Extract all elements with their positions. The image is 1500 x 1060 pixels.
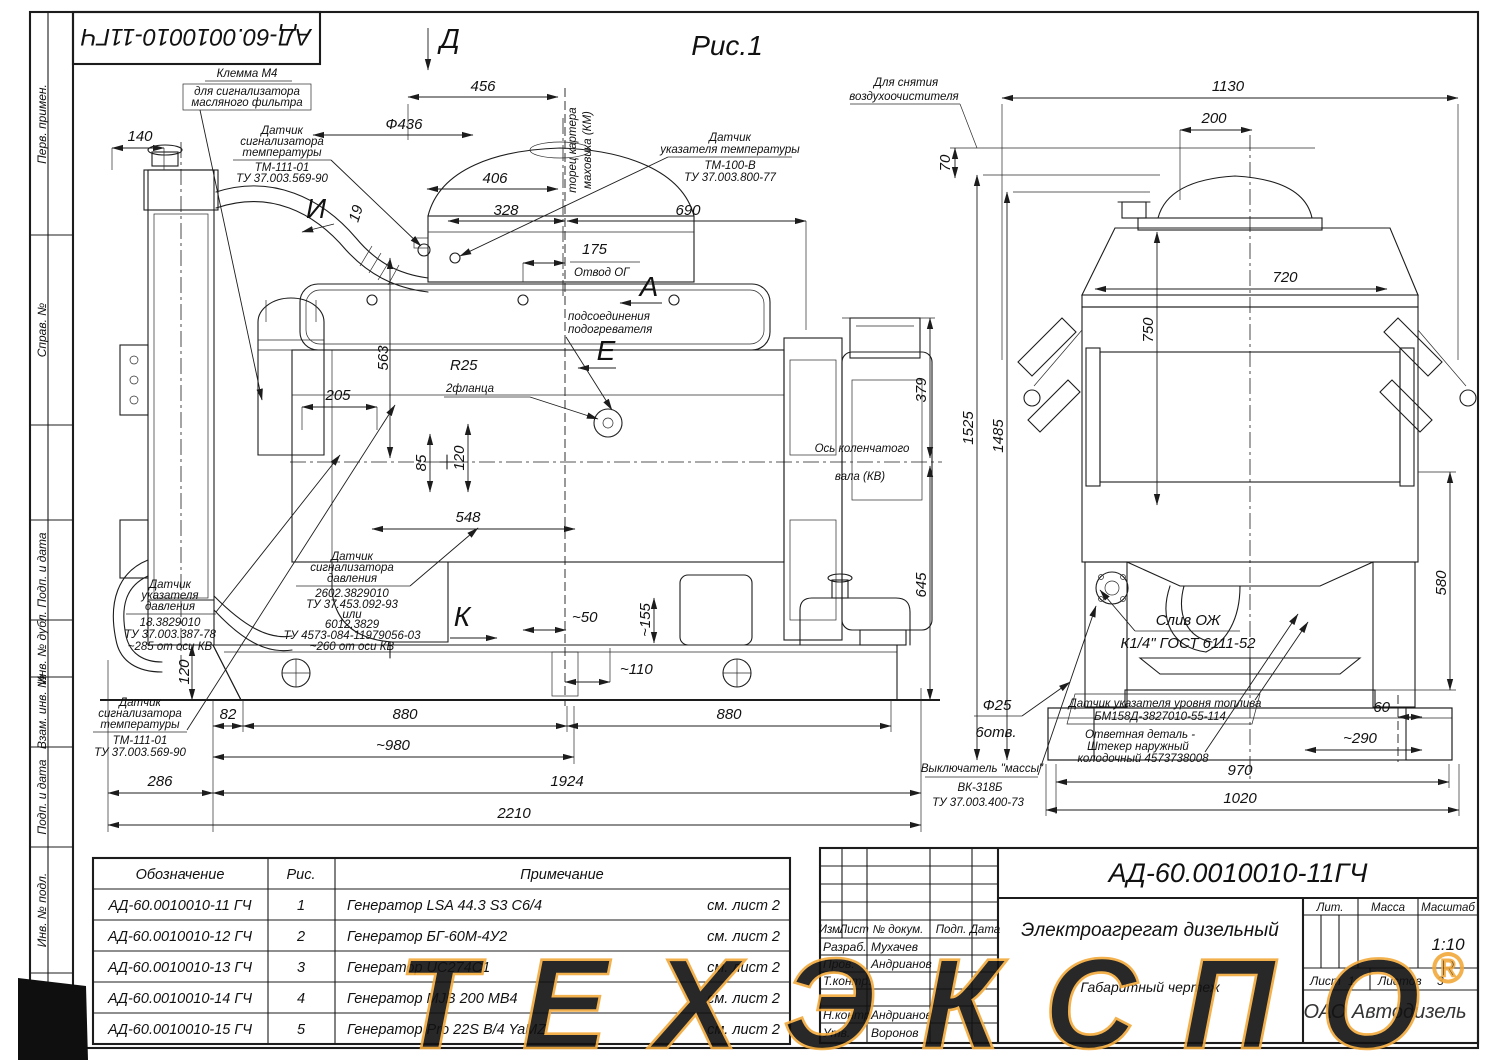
mass-header: Масса <box>1371 902 1405 914</box>
dim-286: 286 <box>146 773 173 790</box>
cell-figure: 2 <box>296 929 305 945</box>
cell-designation: АД-60.0010010-14 ГЧ <box>107 991 252 1007</box>
sidebar-label: Перв. примен. <box>35 84 49 164</box>
scan-artifact <box>18 978 88 1060</box>
dim-50: ~50 <box>572 609 598 626</box>
label-flywheel-face: торец картера <box>567 107 579 192</box>
table-header: Рис. <box>286 867 315 883</box>
callout-temp-signal-sensor-top: Датчик сигнализатора температуры ТМ-111-… <box>233 125 421 246</box>
label-crankshaft-axis: Ось коленчатого <box>815 443 910 455</box>
label-exhaust-outlet: Отвод ОГ <box>574 267 630 279</box>
callout-text: ТУ 37.003.387-78 <box>124 629 216 641</box>
oil-filter <box>258 298 324 455</box>
callout-text: Ответная деталь - <box>1085 729 1195 741</box>
callout-text: Ф25 <box>983 697 1012 714</box>
label-2-flanges: 2фланца <box>445 383 494 395</box>
cell-see-sheet: см. лист 2 <box>707 898 780 914</box>
sidebar-label: Взам. инв. № <box>35 675 49 749</box>
lit-header: Лит. <box>1316 902 1344 914</box>
front-view-dimensions: 1130 200 70 Для снятия воздухоочистителя… <box>849 77 1459 816</box>
dim-175: 175 <box>582 241 608 258</box>
label-heater-connection: подсоединения <box>568 311 650 323</box>
front-view <box>1018 135 1476 782</box>
sidebar-label: Подп. и дата <box>35 532 49 607</box>
view-arrow-k: К <box>454 601 472 632</box>
cell-figure: 4 <box>297 991 305 1007</box>
dim-120-base: 120 <box>176 659 193 685</box>
callout-text: БМ158Д-3827010-55-114 <box>1094 711 1226 723</box>
dim-970: 970 <box>1227 762 1253 779</box>
cell-designation: АД-60.0010010-15 ГЧ <box>107 1022 252 1038</box>
dim-200: 200 <box>1200 110 1227 127</box>
cell-note: Генератор LSA 44.3 S3 C6/4 <box>347 898 542 914</box>
callout-text: давления <box>145 601 195 613</box>
drawing-canvas: Перв. примен. Справ. № Подп. и дата Инв.… <box>0 0 1500 1060</box>
label-flywheel-face: маховика (КМ) <box>582 111 594 189</box>
callout-text: Для снятия <box>872 77 938 89</box>
dim-r25: R25 <box>450 357 478 374</box>
air-cleaner-front <box>1158 176 1312 218</box>
callout-text: указателя температуры <box>659 144 800 156</box>
dim-70: 70 <box>937 154 954 171</box>
figure-label: Рис.1 <box>691 30 763 61</box>
dim-645: 645 <box>913 572 930 598</box>
fuel-tank <box>800 574 910 645</box>
callout-text: К1/4" ГОСТ 6111-52 <box>1121 635 1257 652</box>
doc-number: АД-60.0010010-11ГЧ <box>1107 858 1369 888</box>
dim-60: 60 <box>1373 699 1390 716</box>
sidebar-label: Подп. и дата <box>35 759 49 834</box>
callout-text: температуры <box>100 719 180 731</box>
watermark: ОАО Автодизель ТЕХЭКСПО ® <box>398 933 1467 1060</box>
callout-text: масляного фильтра <box>191 97 302 109</box>
table-row: АД-60.0010010-11 ГЧ 1 Генератор LSA 44.3… <box>107 898 780 914</box>
drawing-sheet: Перв. примен. Справ. № Подп. и дата Инв.… <box>0 0 1500 1060</box>
callout-pressure-signal-sensor: Датчик сигнализатора давления 2602.38290… <box>284 528 478 653</box>
dim-880a: 880 <box>392 706 418 723</box>
callout-text: давления <box>327 573 377 585</box>
callout-text: ТУ 37.003.569-90 <box>94 747 186 759</box>
callout-text: Выключатель "массы" <box>921 763 1044 775</box>
callout-text: Датчик <box>707 132 751 144</box>
dim-328: 328 <box>493 202 519 219</box>
dim-1020: 1020 <box>1223 790 1257 807</box>
callout-text: ~260 от оси КВ <box>310 641 395 653</box>
callout-text: ТУ 37.003.800-77 <box>684 172 776 184</box>
sidebar-label: Справ. № <box>35 303 49 358</box>
dim-548: 548 <box>455 509 481 526</box>
watermark-text: ТЕХЭКСПО <box>398 933 1466 1060</box>
scale-header: Масштаб <box>1421 902 1475 914</box>
view-arrow-d: Д <box>437 23 460 54</box>
callout-text: колодочный 4573738008 <box>1078 753 1210 765</box>
callout-text: ~285 от оси КВ <box>128 641 213 653</box>
dim-379: 379 <box>913 377 930 403</box>
dim-720: 720 <box>1272 269 1298 286</box>
dim-155: ~155 <box>637 602 654 636</box>
mass-switch-device <box>1096 572 1128 604</box>
label-heater-connection: подогревателя <box>568 324 652 336</box>
dim-580: 580 <box>1433 570 1450 596</box>
callout-text: температуры <box>242 147 322 159</box>
watermark-registered-icon: ® <box>1432 944 1463 991</box>
dim-406: 406 <box>482 170 508 187</box>
cell-designation: АД-60.0010010-12 ГЧ <box>107 929 252 945</box>
sidebar-label: Инв. № подл. <box>35 873 49 947</box>
top-stamp: АД-60.0010010-11ГЧ <box>73 12 320 64</box>
base-skid <box>100 645 940 700</box>
dim-140: 140 <box>127 128 153 145</box>
table-header: Примечание <box>520 867 604 883</box>
dim-85: 85 <box>413 454 430 471</box>
expansion-box <box>680 575 752 645</box>
callout-text: 18.3829010 <box>140 617 201 629</box>
side-bracket-left <box>1018 318 1082 432</box>
sidebar-label: Инв. № дубл. <box>35 611 49 685</box>
callout-text: Датчик указателя уровня топлива <box>1067 698 1262 710</box>
callout-text: ТМ-100-В <box>704 160 756 172</box>
callout-text: ТМ-111-01 <box>113 735 168 747</box>
cell-designation: АД-60.0010010-13 ГЧ <box>107 960 252 976</box>
dim-120-offset: 120 <box>451 445 468 471</box>
callout-text: Слив ОЖ <box>1156 612 1222 629</box>
dim-563: 563 <box>375 345 392 371</box>
cell-figure: 1 <box>297 898 305 914</box>
label-crankshaft-axis: вала (КВ) <box>835 471 885 483</box>
dim-1924: 1924 <box>550 773 583 790</box>
callout-pressure-gauge-sensor: Датчик указателя давления 18.3829010 ТУ … <box>124 455 340 653</box>
cell-figure: 5 <box>297 1022 306 1038</box>
side-bracket-right <box>1380 318 1476 432</box>
dim-980: ~980 <box>376 737 410 754</box>
dim-1485: 1485 <box>990 419 1007 453</box>
callout-text: ТУ 37.003.569-90 <box>236 173 328 185</box>
dim-456: 456 <box>470 78 496 95</box>
view-arrow-e: Е <box>597 335 616 366</box>
dim-436: Ф436 <box>386 116 424 133</box>
dim-110: ~110 <box>620 661 653 678</box>
view-arrow-a: А <box>638 271 659 302</box>
dim-1130: 1130 <box>1212 78 1245 95</box>
dim-205: 205 <box>324 387 351 404</box>
callout-text: 6отв. <box>975 724 1016 741</box>
cell-figure: 3 <box>297 960 305 976</box>
callout-text: воздухоочистителя <box>849 91 958 103</box>
dim-290: ~290 <box>1343 730 1377 747</box>
callout-temp-gauge-sensor: Датчик указателя температуры ТМ-100-В ТУ… <box>460 132 800 256</box>
callout-text: ТУ 37.003.400-73 <box>932 797 1024 809</box>
dim-1525: 1525 <box>960 411 977 445</box>
callout-mounting-holes: Ф25 6отв. <box>974 682 1070 741</box>
callout-text: Штекер наружный <box>1087 741 1189 753</box>
stamp-doc-number: АД-60.0010010-11ГЧ <box>80 23 313 50</box>
callout-air-cleaner-removal: Для снятия воздухоочистителя <box>849 77 977 148</box>
radiator <box>113 145 292 672</box>
callout-text: ВК-318Б <box>958 782 1003 794</box>
dim-750: 750 <box>1140 317 1157 343</box>
dim-2210: 2210 <box>496 805 531 822</box>
dim-690: 690 <box>675 202 701 219</box>
table-header: Обозначение <box>136 867 225 883</box>
callout-text: Клемма М4 <box>217 68 278 80</box>
cell-designation: АД-60.0010010-11 ГЧ <box>107 898 251 914</box>
dim-19: 19 <box>346 202 368 224</box>
dim-880b: 880 <box>716 706 742 723</box>
sidebar-labels: Перв. примен. Справ. № Подп. и дата Инв.… <box>35 84 49 947</box>
view-arrow-i: И <box>306 193 327 224</box>
dim-82: 82 <box>220 706 237 723</box>
